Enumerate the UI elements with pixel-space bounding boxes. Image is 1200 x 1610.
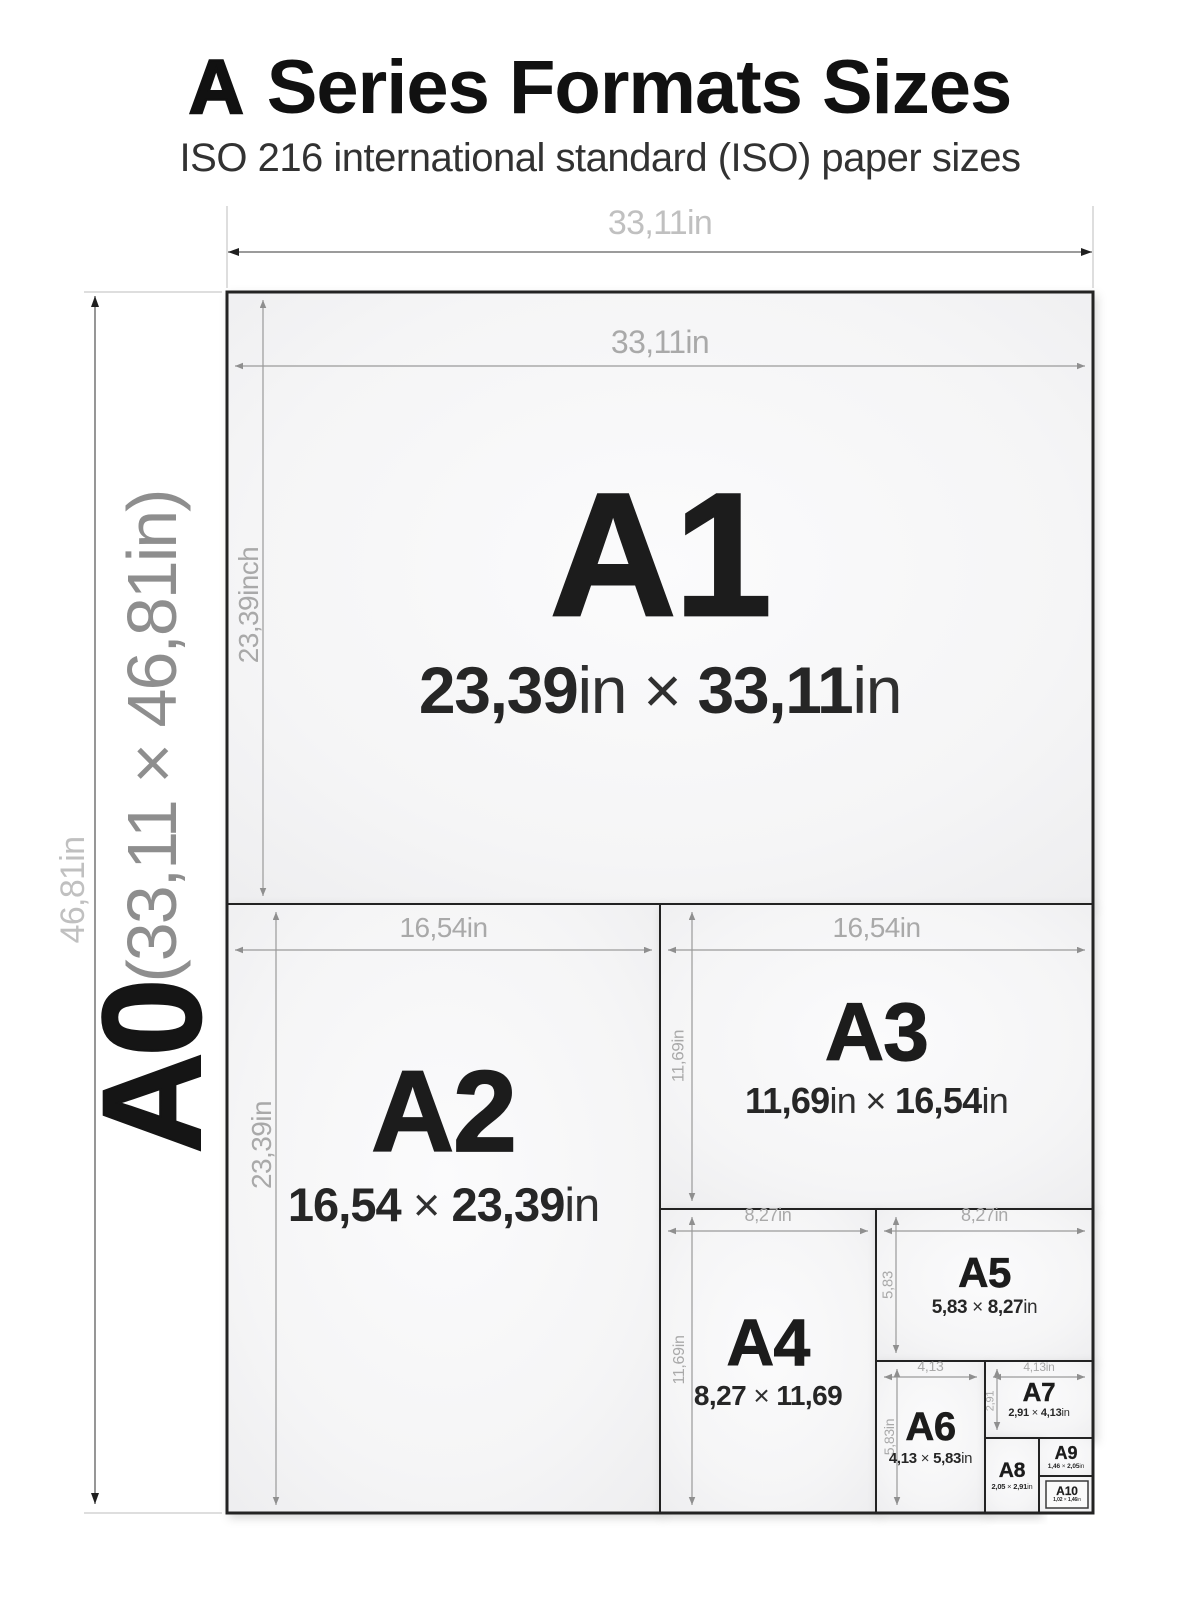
a2-dims: 16,54 × 23,39in xyxy=(288,1178,599,1232)
a4-name: A4 xyxy=(726,1309,809,1375)
a4-dims: 8,27 × 11,69 xyxy=(694,1380,842,1412)
a0-dims: (33,11 × 46,81in) xyxy=(117,491,187,983)
a6-name: A6 xyxy=(905,1407,955,1447)
a4-sheet-label: A4 8,27 × 11,69 xyxy=(660,1209,876,1513)
a8-name: A8 xyxy=(999,1460,1025,1481)
a9-name: A9 xyxy=(1055,1444,1078,1462)
a0-height-dimension-label: 46,81in xyxy=(56,837,90,944)
a2-name: A2 xyxy=(371,1055,516,1170)
a5-sheet-label: A5 5,83 × 8,27in xyxy=(876,1209,1093,1361)
a1-name: A1 xyxy=(550,468,770,643)
page: { "header": { "title_bold": "A", "title_… xyxy=(0,0,1200,1610)
a1-sheet-label: A1 23,39in × 33,11in xyxy=(227,292,1093,904)
a6-sheet-label: A6 4,13 × 5,83in xyxy=(876,1361,985,1513)
a9-dims: 1,46 × 2,05in xyxy=(1048,1463,1085,1470)
a7-sheet-label: A7 2,91 × 4,13in xyxy=(985,1361,1093,1438)
a10-name: A10 xyxy=(1056,1485,1078,1497)
a10-sheet-label: A10 1,02 × 1,46in xyxy=(1046,1481,1088,1508)
a5-name: A5 xyxy=(958,1252,1011,1294)
a3-name: A3 xyxy=(825,992,928,1074)
a8-sheet-label: A8 2,05 × 2,91in xyxy=(985,1438,1039,1513)
a1-dims: 23,39in × 33,11in xyxy=(419,653,901,729)
a0-name: A0 xyxy=(89,983,215,1154)
a0-label: A0(33,11 × 46,81in) xyxy=(89,491,215,1154)
a2-sheet-label: A2 16,54 × 23,39in xyxy=(227,904,660,1513)
a5-dims: 5,83 × 8,27in xyxy=(932,1297,1037,1319)
a6-dims: 4,13 × 5,83in xyxy=(889,1450,972,1467)
a8-dims: 2,05 × 2,91in xyxy=(991,1483,1032,1492)
a7-name: A7 xyxy=(1023,1379,1056,1405)
a10-dims: 1,02 × 1,46in xyxy=(1053,1498,1081,1504)
a3-sheet-label: A3 11,69in × 16,54in xyxy=(660,904,1093,1209)
a0-width-dimension-label: 33,11in xyxy=(227,206,1093,240)
a3-dims: 11,69in × 16,54in xyxy=(745,1080,1008,1121)
a9-sheet-label: A9 1,46 × 2,05in xyxy=(1039,1438,1093,1476)
a7-dims: 2,91 × 4,13in xyxy=(1008,1407,1069,1420)
